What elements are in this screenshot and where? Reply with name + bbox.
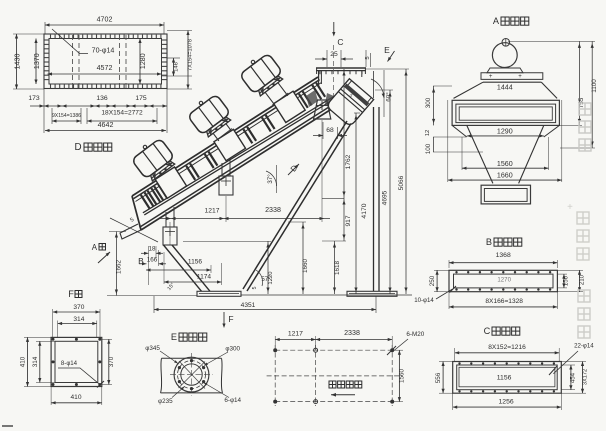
svg-text:4572: 4572	[97, 64, 113, 72]
svg-text:314: 314	[32, 356, 39, 367]
svg-text:6-φ14: 6-φ14	[224, 397, 241, 404]
svg-text:22-φ14: 22-φ14	[574, 343, 594, 350]
svg-text:12: 12	[425, 130, 431, 137]
svg-text:1220: 1220	[268, 271, 274, 285]
svg-text:1762: 1762	[345, 154, 352, 169]
svg-text:φ300: φ300	[225, 346, 240, 353]
svg-text:C: C	[337, 37, 343, 47]
svg-text:8-φ14: 8-φ14	[61, 360, 78, 367]
svg-text:1660: 1660	[497, 172, 513, 180]
svg-text:1270: 1270	[497, 277, 511, 284]
svg-text:1100: 1100	[591, 79, 598, 93]
svg-text:1280: 1280	[139, 53, 147, 69]
svg-text:6-M20: 6-M20	[406, 331, 424, 338]
svg-text:+: +	[489, 73, 493, 80]
svg-text:1560: 1560	[497, 160, 513, 168]
svg-text:1290: 1290	[497, 128, 513, 136]
svg-text:70-φ14: 70-φ14	[92, 47, 115, 55]
svg-text:5066: 5066	[398, 175, 405, 190]
svg-text:1217: 1217	[205, 208, 220, 215]
svg-text:1368: 1368	[496, 252, 511, 259]
svg-text:B: B	[486, 237, 492, 247]
svg-text:1174: 1174	[197, 274, 212, 281]
svg-text:25: 25	[330, 51, 338, 58]
svg-text:2338: 2338	[344, 329, 360, 337]
svg-text:175: 175	[135, 95, 147, 102]
svg-text:1156: 1156	[188, 259, 203, 266]
svg-text:9X154=1386: 9X154=1386	[52, 113, 81, 119]
svg-text:C: C	[484, 326, 491, 336]
svg-text:300: 300	[425, 97, 432, 108]
svg-text:8X152=1216: 8X152=1216	[488, 344, 526, 351]
svg-text:100: 100	[425, 143, 432, 154]
svg-text:18: 18	[148, 246, 156, 253]
svg-text:A: A	[92, 243, 98, 252]
svg-text:7X154=1078: 7X154=1078	[188, 39, 194, 71]
svg-text:A: A	[493, 16, 500, 26]
svg-text:37°: 37°	[266, 174, 274, 184]
svg-text:370: 370	[108, 356, 115, 367]
svg-text:1430: 1430	[14, 54, 22, 70]
svg-text:314: 314	[73, 316, 84, 323]
svg-text:166: 166	[147, 256, 158, 263]
svg-text:1560: 1560	[399, 369, 406, 384]
svg-text:4170: 4170	[361, 203, 368, 218]
svg-text:5: 5	[252, 286, 258, 289]
svg-text:+: +	[518, 73, 522, 80]
svg-text:136: 136	[96, 95, 108, 102]
svg-text:173: 173	[28, 95, 40, 102]
svg-text:3X172: 3X172	[583, 369, 589, 385]
svg-text:410: 410	[70, 394, 81, 401]
svg-text:556: 556	[435, 372, 442, 383]
svg-text:F: F	[68, 289, 74, 299]
svg-text:E: E	[384, 45, 390, 55]
svg-text:146: 146	[174, 61, 180, 72]
svg-text:10-φ14: 10-φ14	[414, 297, 434, 304]
svg-text:917: 917	[345, 215, 352, 226]
svg-text:4642: 4642	[98, 121, 114, 129]
svg-text:E: E	[171, 332, 177, 342]
svg-text:2338: 2338	[265, 206, 281, 214]
svg-text:4702: 4702	[97, 16, 113, 24]
svg-text:1662: 1662	[116, 260, 123, 275]
svg-text:φ235: φ235	[158, 398, 173, 405]
svg-text:370: 370	[73, 304, 84, 311]
svg-text:1660: 1660	[302, 259, 309, 274]
svg-text:454: 454	[570, 372, 577, 383]
svg-text:4695: 4695	[382, 190, 389, 205]
svg-text:60°: 60°	[385, 92, 393, 102]
svg-text:68: 68	[326, 127, 334, 134]
svg-text:1618: 1618	[334, 261, 341, 276]
svg-text:1444: 1444	[497, 84, 513, 92]
svg-text:150: 150	[563, 275, 570, 286]
svg-text:8X166=1328: 8X166=1328	[485, 298, 523, 305]
svg-text:1256: 1256	[499, 399, 514, 406]
svg-text:1217: 1217	[288, 331, 303, 338]
svg-text:250: 250	[429, 275, 436, 286]
svg-text:1370: 1370	[33, 53, 41, 69]
svg-text:210: 210	[579, 274, 586, 285]
svg-text:1156: 1156	[497, 375, 512, 382]
svg-text:18X154=2772: 18X154=2772	[101, 110, 143, 117]
svg-text:+: +	[567, 202, 573, 213]
svg-text:D: D	[74, 142, 81, 153]
svg-text:410: 410	[20, 356, 27, 367]
svg-text:4351: 4351	[241, 302, 256, 309]
svg-text:φ345: φ345	[145, 345, 160, 352]
svg-text:F: F	[228, 314, 233, 324]
